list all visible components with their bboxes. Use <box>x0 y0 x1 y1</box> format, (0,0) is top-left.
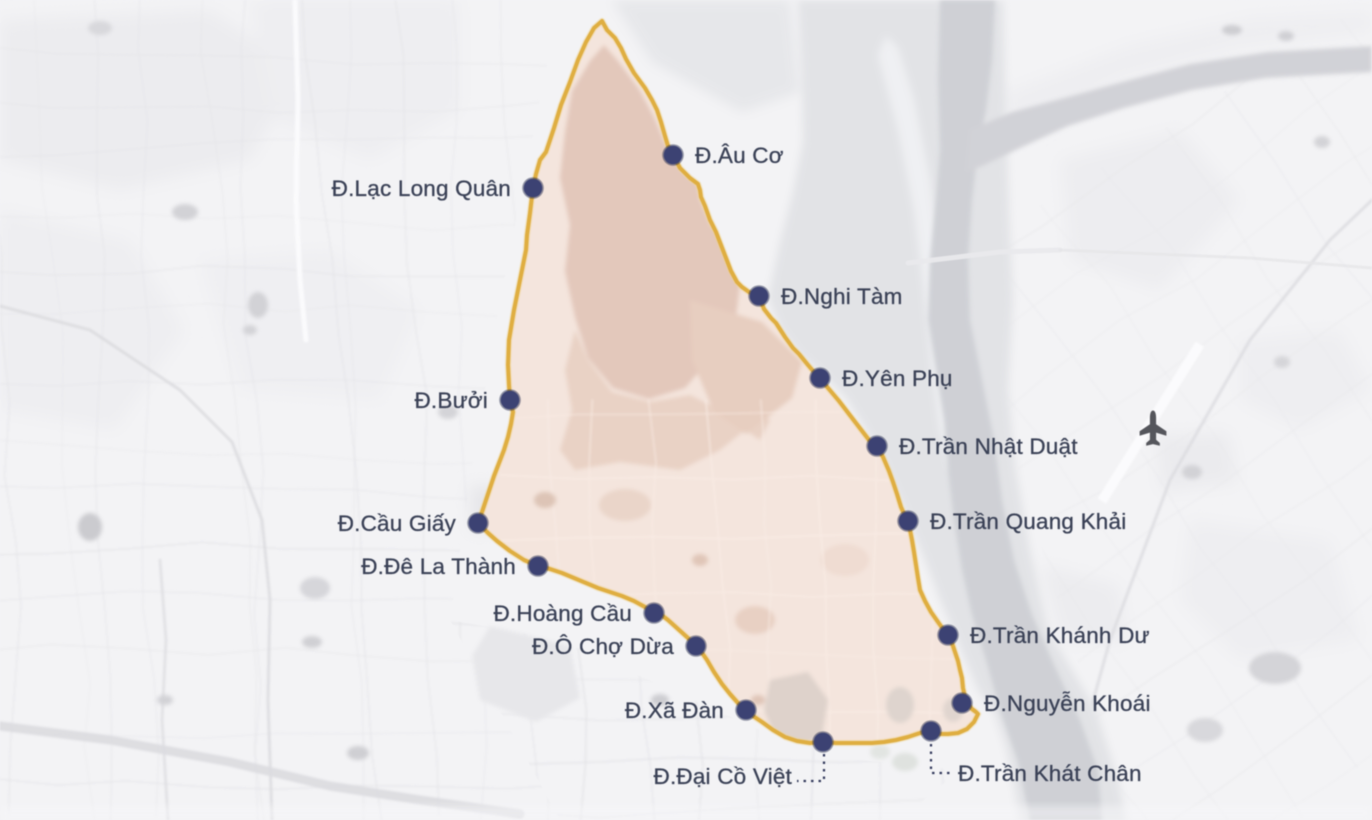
svg-text:Đ.Trần Khánh Dư: Đ.Trần Khánh Dư <box>970 623 1150 648</box>
svg-text:Đ.Hoàng Cầu: Đ.Hoàng Cầu <box>493 601 632 626</box>
svg-text:Đ.Đại Cồ Việt: Đ.Đại Cồ Việt <box>654 764 793 789</box>
svg-text:Đ.Trần Quang Khải: Đ.Trần Quang Khải <box>930 509 1126 534</box>
svg-text:Đ.Cầu Giấy: Đ.Cầu Giấy <box>338 511 457 536</box>
svg-text:Đ.Yên Phụ: Đ.Yên Phụ <box>842 366 953 391</box>
svg-text:Đ.Ô Chợ Dừa: Đ.Ô Chợ Dừa <box>532 634 674 659</box>
svg-text:Đ.Âu Cơ: Đ.Âu Cơ <box>695 143 784 168</box>
svg-text:Đ.Đê La Thành: Đ.Đê La Thành <box>361 554 516 579</box>
svg-text:Đ.Nguyễn Khoái: Đ.Nguyễn Khoái <box>984 691 1151 716</box>
svg-text:Đ.Lạc Long Quân: Đ.Lạc Long Quân <box>332 176 511 201</box>
svg-text:Đ.Trần Nhật Duật: Đ.Trần Nhật Duật <box>899 434 1078 459</box>
svg-text:Đ.Nghi Tàm: Đ.Nghi Tàm <box>781 284 903 309</box>
svg-text:Đ.Xã Đàn: Đ.Xã Đàn <box>625 698 724 723</box>
svg-text:Đ.Bưởi: Đ.Bưởi <box>414 388 488 413</box>
svg-text:Đ.Trần Khát Chân: Đ.Trần Khát Chân <box>958 761 1142 786</box>
